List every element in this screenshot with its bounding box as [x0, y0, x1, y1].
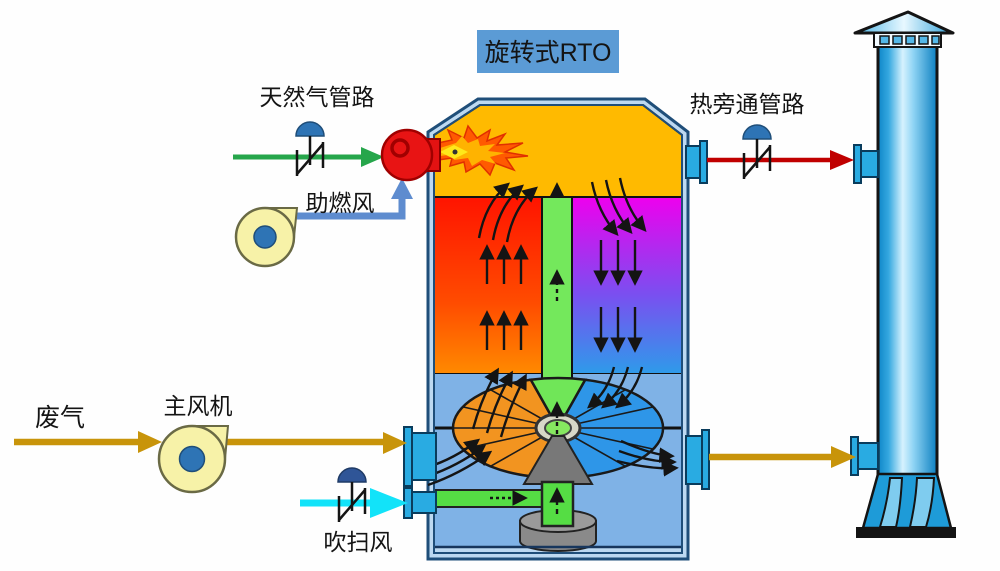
clean-gas-outlet-flange — [702, 430, 709, 489]
diagram-title: 旋转式RTO — [485, 39, 612, 67]
label-combustion-air: 助燃风 — [306, 190, 375, 216]
natural-gas-line — [233, 147, 384, 167]
stack-base-plate — [856, 527, 956, 538]
bypass-outlet-nozzle — [686, 146, 700, 178]
hot-bypass-pipe — [707, 150, 854, 170]
blower-hub — [180, 447, 205, 472]
purge-column — [542, 197, 572, 380]
natural-gas-valve — [296, 122, 324, 176]
stack-bypass-inlet-flange — [854, 145, 861, 183]
combustion-air-blower — [236, 208, 297, 266]
waste-gas-inlet-flange — [404, 427, 412, 486]
purge-air-arrowhead — [370, 488, 408, 518]
natural-gas-arrowhead — [361, 147, 384, 167]
diagram-svg: 旋转式RTO 天然气管路 助燃风 热旁通管路 废气 主风机 吹扫风 — [0, 0, 1000, 571]
valve-actuator-cap — [743, 125, 771, 139]
label-waste-gas: 废气 — [35, 404, 85, 432]
purge-inlet-nozzle — [412, 492, 436, 513]
title-box: 旋转式RTO — [477, 30, 619, 73]
combustion-air-arrowhead — [391, 178, 413, 199]
waste-gas-arrowhead-1 — [138, 431, 162, 453]
rto-process-diagram: 旋转式RTO 天然气管路 助燃风 热旁通管路 废气 主风机 吹扫风 — [0, 0, 1000, 571]
clean-gas-outlet-nozzle — [686, 436, 702, 484]
blower-hub — [254, 226, 276, 248]
label-purge-air: 吹扫风 — [324, 529, 393, 555]
hot-bypass-arrowhead — [830, 150, 854, 170]
label-natural-gas-line: 天然气管路 — [260, 84, 375, 110]
valve-actuator-cap — [338, 468, 366, 482]
label-main-fan: 主风机 — [164, 393, 233, 419]
bypass-outlet-flange — [700, 141, 707, 183]
stack-rain-cap — [855, 12, 953, 33]
stack-body — [878, 38, 937, 530]
rto-vessel — [428, 99, 688, 559]
valve-actuator-cap — [296, 122, 324, 136]
purge-air-valve — [338, 468, 366, 522]
stack-inlet-nozzles — [851, 145, 878, 475]
regenerator-bed-cooling — [572, 197, 682, 374]
waste-gas-inlet-nozzle — [412, 433, 436, 480]
hot-bypass-valve — [743, 125, 771, 179]
exhaust-stack — [851, 12, 956, 538]
clean-gas-line — [709, 446, 856, 468]
stack-skirt — [863, 474, 951, 528]
main-fan-blower — [159, 426, 228, 492]
stack-main-inlet-nozzle — [858, 443, 878, 469]
label-hot-bypass-line: 热旁通管路 — [690, 91, 805, 117]
stack-bypass-inlet-nozzle — [861, 151, 878, 177]
